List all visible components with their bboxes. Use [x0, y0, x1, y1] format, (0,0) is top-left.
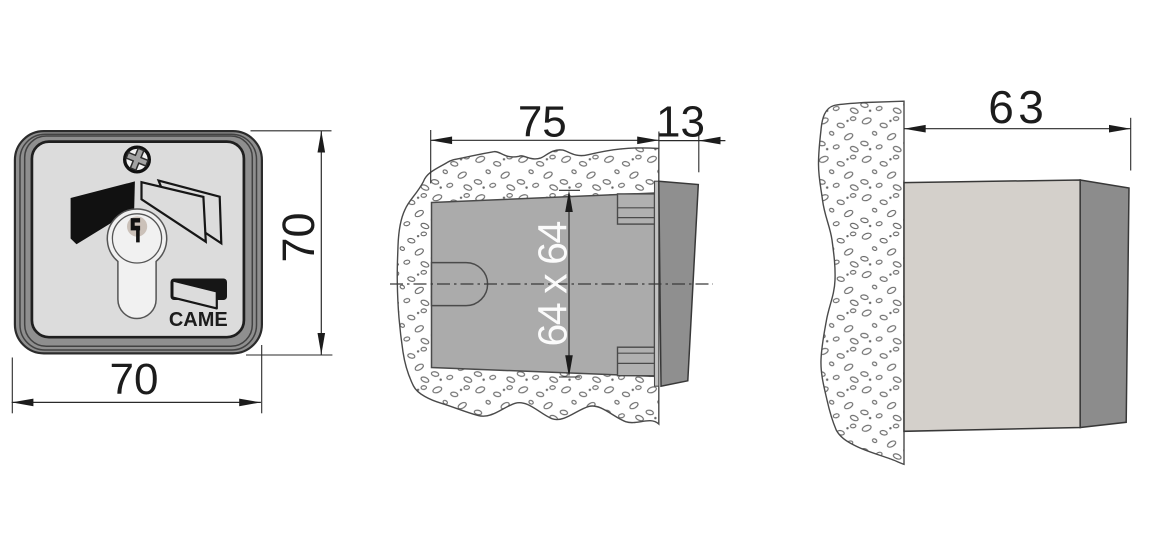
svg-text:75: 75: [518, 97, 567, 146]
svg-text:64 x 64: 64 x 64: [529, 221, 575, 346]
svg-text:63: 63: [988, 81, 1048, 133]
svg-text:CAME: CAME: [169, 309, 228, 331]
svg-text:13: 13: [656, 98, 705, 147]
svg-text:70: 70: [273, 212, 324, 262]
svg-text:70: 70: [110, 355, 159, 404]
